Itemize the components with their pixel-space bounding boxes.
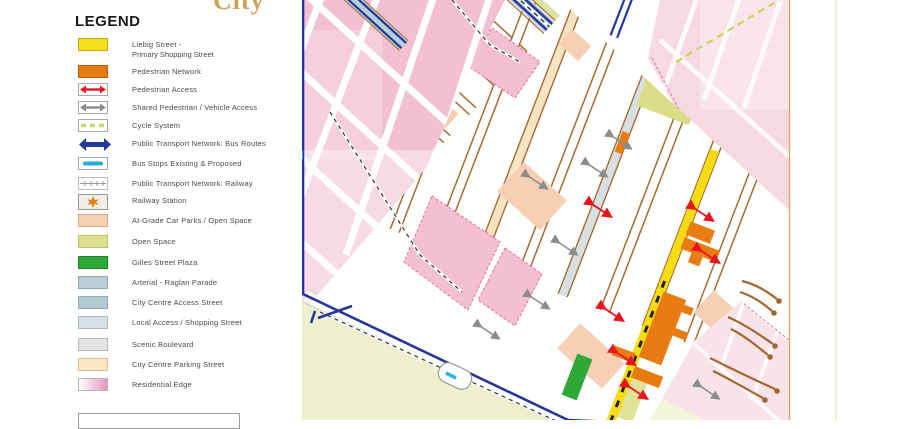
legend-label-car-parks: At-Grade Car Parks / Open Space (132, 216, 252, 225)
legend-swatch-liebig-street (78, 38, 108, 51)
legend-label-pedestrian-network: Pedestrian Network (132, 67, 201, 76)
legend-swatch-bus-stops (78, 157, 108, 170)
map-content (302, 0, 900, 420)
legend-swatch-parking-street (78, 358, 108, 371)
map-svg (302, 0, 900, 420)
legend-label-residential-edge: Residential Edge (132, 380, 192, 389)
legend-panel: City LEGEND Liebig Street -Primary Shopp… (0, 0, 302, 420)
legend-label-shared-access: Shared Pedestrian / Vehicle Access (132, 103, 257, 112)
masterplan-map (302, 0, 900, 420)
legend-swatch-city-centre-access (78, 296, 108, 309)
legend-swatch-residential-edge (78, 378, 108, 391)
legend-swatch-bus-routes (78, 137, 112, 150)
legend-label-local-access: Local Access / Shopping Street (132, 318, 242, 327)
legend-title: LEGEND (75, 13, 141, 30)
legend-swatch-open-space (78, 235, 108, 248)
legend-footer-box (78, 413, 240, 429)
legend-label-arterial: Arterial - Raglan Parade (132, 278, 217, 287)
legend-label-bus-routes: Public Transport Network: Bus Routes (132, 139, 266, 148)
legend-label-city-centre-access: City Centre Access Street (132, 298, 222, 307)
legend-label-liebig-street: Liebig Street - (132, 40, 182, 49)
legend-swatch-cycle-system (78, 119, 108, 132)
legend-label-railway-station: Railway Station (132, 196, 187, 205)
legend-label-pedestrian-access: Pedestrian Access (132, 85, 197, 94)
legend-swatch-car-parks (78, 214, 108, 227)
legend-swatch-gilles-plaza (78, 256, 108, 269)
legend-label-railway: Public Transport Network: Railway (132, 179, 253, 188)
legend-swatch-shared-access (78, 101, 108, 114)
legend-swatch-pedestrian-network (78, 65, 108, 78)
legend-label-open-space: Open Space (132, 237, 176, 246)
legend-swatch-local-access (78, 316, 108, 329)
legend-label2-liebig-street: Primary Shopping Street (132, 50, 214, 59)
page-title-fragment: City (213, 0, 265, 16)
legend-label-cycle-system: Cycle System (132, 121, 180, 130)
legend-label-gilles-plaza: Gilles Street Plaza (132, 258, 198, 267)
legend-label-bus-stops: Bus Stops Existing & Proposed (132, 159, 242, 168)
legend-swatch-railway-station (78, 194, 108, 210)
legend-swatch-railway (78, 177, 108, 190)
legend-label-parking-street: City Centre Parking Street (132, 360, 224, 369)
legend-label-scenic-boulevard: Scenic Boulevard (132, 340, 194, 349)
legend-swatch-arterial (78, 276, 108, 289)
legend-swatch-pedestrian-access (78, 83, 108, 96)
legend-swatch-scenic-boulevard (78, 338, 108, 351)
